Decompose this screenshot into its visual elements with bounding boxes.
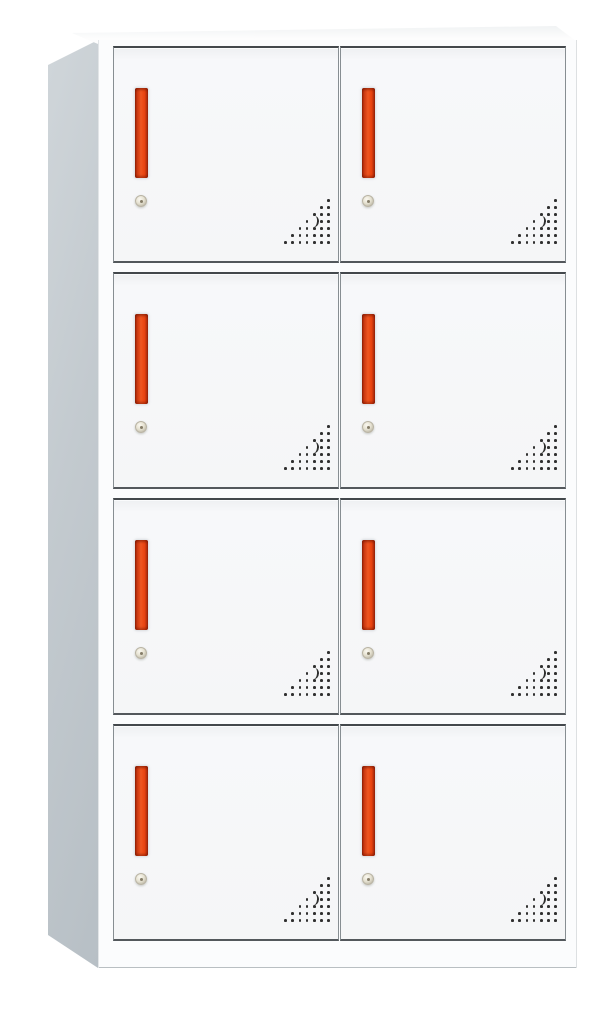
vent-dot (554, 206, 557, 209)
vent-dot (547, 453, 550, 456)
cam-lock (362, 421, 374, 433)
vent-dot (540, 467, 543, 470)
vent-dot (554, 679, 557, 682)
vent-dot (554, 651, 557, 654)
vent-dot (554, 672, 557, 675)
vent-dot (511, 693, 514, 696)
vent-dot (320, 693, 323, 696)
vent-dot (518, 467, 521, 470)
vent-dot (533, 672, 536, 675)
vent-dot (554, 665, 557, 668)
vent-dot (327, 693, 330, 696)
vent-dot (327, 234, 330, 237)
vent-holes (510, 651, 557, 701)
vent-dot (547, 460, 550, 463)
vent-dot (313, 679, 316, 682)
vent-dot (327, 686, 330, 689)
vent-dot (540, 227, 543, 230)
vent-dot (533, 241, 536, 244)
vent-crescent-hole (309, 668, 319, 680)
vent-dot (320, 679, 323, 682)
vent-dot (554, 658, 557, 661)
vent-dot (327, 658, 330, 661)
vent-dot (299, 919, 302, 922)
vent-dot (327, 425, 330, 428)
cam-lock (135, 195, 147, 207)
vent-holes (510, 877, 557, 927)
vent-dot (547, 234, 550, 237)
vent-dot (327, 672, 330, 675)
vent-dot (540, 234, 543, 237)
vent-crescent-hole (309, 442, 319, 454)
vent-dot (554, 199, 557, 202)
vent-dot (320, 439, 323, 442)
vent-dot (526, 234, 529, 237)
vent-dot (320, 446, 323, 449)
vent-dot (327, 241, 330, 244)
vent-holes (510, 425, 557, 475)
vent-dot (547, 665, 550, 668)
vent-dot (313, 234, 316, 237)
vent-crescent-hole (536, 216, 546, 228)
locker-door (340, 724, 566, 941)
vent-dot (526, 227, 529, 230)
door-handle (135, 766, 148, 856)
vent-dot (306, 693, 309, 696)
vent-dot (547, 220, 550, 223)
vent-dot (533, 919, 536, 922)
vent-dot (313, 912, 316, 915)
vent-dot (320, 206, 323, 209)
vent-dot (313, 905, 316, 908)
locker-door (113, 46, 339, 263)
vent-dot (327, 651, 330, 654)
vent-dot (327, 453, 330, 456)
vent-dot (313, 467, 316, 470)
vent-dot (327, 898, 330, 901)
vent-holes (283, 425, 330, 475)
cam-lock (362, 873, 374, 885)
vent-dot (313, 919, 316, 922)
cam-lock (135, 421, 147, 433)
vent-dot (306, 672, 309, 675)
vent-dot (313, 460, 316, 463)
vent-dot (306, 234, 309, 237)
vent-dot (540, 241, 543, 244)
vent-dot (526, 453, 529, 456)
vent-dot (291, 460, 294, 463)
vent-dot (533, 693, 536, 696)
vent-dot (291, 919, 294, 922)
vent-dot (299, 227, 302, 230)
vent-crescent-hole (309, 216, 319, 228)
vent-dot (526, 912, 529, 915)
vent-dot (320, 912, 323, 915)
vent-dot (533, 234, 536, 237)
locker-door (113, 724, 339, 941)
cam-lock (135, 873, 147, 885)
door-handle (362, 540, 375, 630)
vent-dot (540, 693, 543, 696)
vent-dot (320, 453, 323, 456)
vent-dot (327, 905, 330, 908)
vent-dot (320, 686, 323, 689)
vent-dot (547, 919, 550, 922)
locker-door (340, 498, 566, 715)
vent-dot (547, 446, 550, 449)
vent-dot (306, 898, 309, 901)
vent-dot (327, 213, 330, 216)
vent-dot (306, 227, 309, 230)
vent-dot (547, 891, 550, 894)
vent-dot (306, 467, 309, 470)
vent-dot (547, 206, 550, 209)
cabinet-front (98, 40, 577, 968)
vent-dot (306, 446, 309, 449)
vent-dot (547, 898, 550, 901)
vent-dot (299, 460, 302, 463)
door-handle (135, 314, 148, 404)
vent-dot (306, 220, 309, 223)
vent-dot (533, 453, 536, 456)
vent-dot (533, 467, 536, 470)
cam-lock (362, 195, 374, 207)
vent-dot (320, 905, 323, 908)
vent-dot (547, 686, 550, 689)
vent-dot (320, 234, 323, 237)
vent-dot (313, 693, 316, 696)
vent-dot (327, 227, 330, 230)
vent-dot (540, 912, 543, 915)
vent-dot (554, 693, 557, 696)
vent-dot (284, 467, 287, 470)
vent-dot (540, 679, 543, 682)
vent-dot (306, 919, 309, 922)
vent-dot (547, 905, 550, 908)
vent-dot (320, 241, 323, 244)
vent-dot (327, 460, 330, 463)
vent-dot (306, 679, 309, 682)
vent-dot (511, 241, 514, 244)
vent-dot (526, 905, 529, 908)
vent-dot (554, 912, 557, 915)
vent-crescent-hole (309, 894, 319, 906)
vent-dot (306, 905, 309, 908)
vent-dot (547, 467, 550, 470)
vent-dot (533, 686, 536, 689)
vent-dot (518, 919, 521, 922)
vent-dot (533, 446, 536, 449)
vent-dot (518, 912, 521, 915)
vent-dot (547, 227, 550, 230)
vent-dot (327, 665, 330, 668)
vent-dot (533, 220, 536, 223)
vent-dot (526, 693, 529, 696)
vent-dot (547, 658, 550, 661)
vent-dot (299, 693, 302, 696)
vent-dot (540, 460, 543, 463)
locker-door (340, 272, 566, 489)
vent-dot (320, 213, 323, 216)
vent-dot (518, 460, 521, 463)
vent-holes (283, 199, 330, 249)
vent-dot (554, 891, 557, 894)
vent-dot (313, 241, 316, 244)
vent-holes (283, 651, 330, 701)
vent-dot (291, 234, 294, 237)
vent-dot (554, 227, 557, 230)
vent-dot (327, 912, 330, 915)
vent-dot (306, 686, 309, 689)
vent-dot (306, 453, 309, 456)
vent-dot (327, 446, 330, 449)
vent-dot (511, 919, 514, 922)
vent-dot (540, 453, 543, 456)
vent-dot (526, 679, 529, 682)
vent-dot (327, 220, 330, 223)
vent-dot (291, 912, 294, 915)
locker-door (113, 498, 339, 715)
vent-dot (320, 460, 323, 463)
vent-dot (299, 912, 302, 915)
vent-dot (284, 693, 287, 696)
door-grid (113, 46, 566, 941)
locker-cabinet-photo (0, 0, 605, 1009)
vent-dot (533, 912, 536, 915)
vent-dot (320, 220, 323, 223)
vent-dot (299, 453, 302, 456)
vent-dot (327, 199, 330, 202)
cam-lock (362, 647, 374, 659)
vent-dot (554, 919, 557, 922)
vent-dot (554, 425, 557, 428)
vent-dot (554, 884, 557, 887)
vent-dot (320, 919, 323, 922)
vent-dot (518, 686, 521, 689)
vent-dot (306, 912, 309, 915)
vent-dot (554, 877, 557, 880)
vent-dot (313, 686, 316, 689)
vent-dot (540, 919, 543, 922)
vent-dot (533, 460, 536, 463)
vent-dot (518, 693, 521, 696)
vent-dot (533, 898, 536, 901)
locker-door (113, 272, 339, 489)
vent-dot (518, 241, 521, 244)
vent-dot (327, 919, 330, 922)
vent-dot (526, 686, 529, 689)
vent-dot (518, 234, 521, 237)
vent-dot (320, 672, 323, 675)
cabinet-side-panel (48, 33, 98, 968)
vent-holes (510, 199, 557, 249)
vent-dot (327, 432, 330, 435)
door-handle (135, 540, 148, 630)
vent-dot (511, 467, 514, 470)
vent-dot (554, 439, 557, 442)
vent-dot (291, 686, 294, 689)
vent-dot (526, 460, 529, 463)
vent-dot (320, 467, 323, 470)
vent-dot (554, 460, 557, 463)
vent-dot (327, 877, 330, 880)
vent-dot (320, 891, 323, 894)
vent-dot (284, 241, 287, 244)
vent-dot (554, 905, 557, 908)
vent-dot (554, 898, 557, 901)
vent-dot (327, 206, 330, 209)
vent-dot (291, 241, 294, 244)
vent-dot (327, 679, 330, 682)
vent-dot (327, 467, 330, 470)
vent-dot (533, 227, 536, 230)
vent-dot (554, 446, 557, 449)
vent-dot (547, 884, 550, 887)
vent-dot (554, 220, 557, 223)
door-handle (362, 88, 375, 178)
vent-crescent-hole (536, 668, 546, 680)
vent-dot (547, 432, 550, 435)
locker-door (340, 46, 566, 263)
vent-dot (554, 213, 557, 216)
vent-dot (533, 905, 536, 908)
vent-dot (313, 453, 316, 456)
cabinet-base (99, 941, 576, 968)
vent-dot (547, 679, 550, 682)
vent-dot (320, 658, 323, 661)
vent-dot (320, 898, 323, 901)
vent-dot (320, 432, 323, 435)
door-handle (362, 766, 375, 856)
vent-dot (547, 912, 550, 915)
vent-dot (554, 234, 557, 237)
vent-dot (284, 919, 287, 922)
cam-lock (135, 647, 147, 659)
vent-dot (547, 213, 550, 216)
vent-dot (540, 905, 543, 908)
door-handle (135, 88, 148, 178)
vent-dot (526, 919, 529, 922)
vent-dot (299, 467, 302, 470)
vent-dot (299, 241, 302, 244)
vent-dot (554, 432, 557, 435)
vent-dot (540, 686, 543, 689)
vent-dot (547, 672, 550, 675)
door-handle (362, 314, 375, 404)
vent-dot (533, 679, 536, 682)
vent-dot (320, 884, 323, 887)
vent-holes (283, 877, 330, 927)
vent-dot (554, 686, 557, 689)
vent-dot (299, 686, 302, 689)
vent-dot (327, 439, 330, 442)
vent-dot (320, 665, 323, 668)
vent-dot (299, 905, 302, 908)
vent-dot (526, 467, 529, 470)
vent-dot (306, 241, 309, 244)
vent-dot (554, 467, 557, 470)
vent-dot (526, 241, 529, 244)
vent-dot (547, 241, 550, 244)
vent-crescent-hole (536, 442, 546, 454)
vent-dot (554, 453, 557, 456)
vent-dot (327, 884, 330, 887)
vent-crescent-hole (536, 894, 546, 906)
vent-dot (306, 460, 309, 463)
vent-dot (327, 891, 330, 894)
vent-dot (547, 693, 550, 696)
vent-dot (291, 467, 294, 470)
vent-dot (547, 439, 550, 442)
vent-dot (299, 234, 302, 237)
vent-dot (554, 241, 557, 244)
vent-dot (299, 679, 302, 682)
vent-dot (313, 227, 316, 230)
vent-dot (291, 693, 294, 696)
vent-dot (320, 227, 323, 230)
